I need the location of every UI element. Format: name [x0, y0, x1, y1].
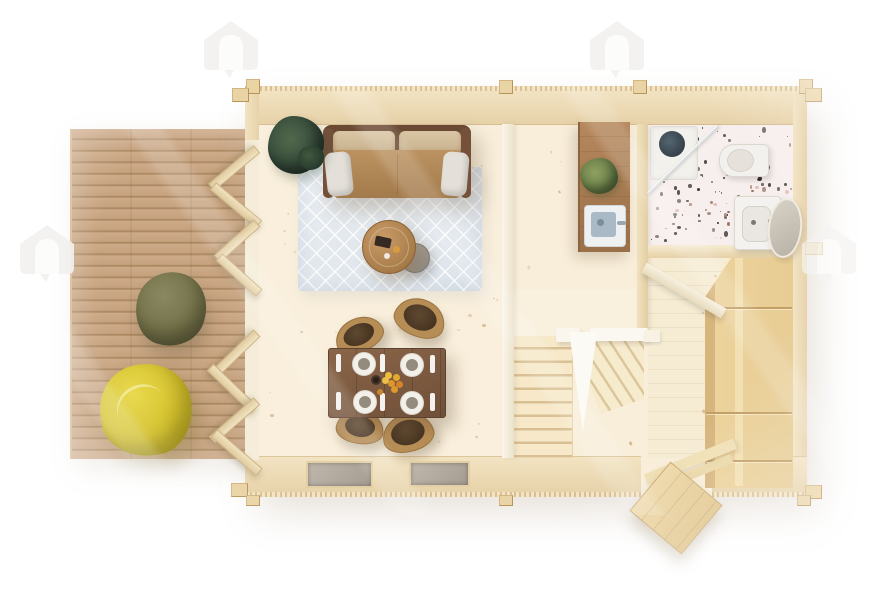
napkin: [430, 393, 435, 411]
log-end: [797, 495, 811, 506]
terrazzo-speckle: [724, 213, 727, 217]
terrazzo-speckle: [674, 232, 677, 235]
terrazzo-speckle: [719, 191, 721, 192]
terrazzo-speckle: [672, 223, 675, 225]
terrazzo-speckle: [721, 192, 723, 194]
wall-north: [245, 90, 807, 125]
terrazzo-speckle: [759, 136, 760, 137]
floor-knot: [287, 213, 288, 215]
kitchenette-sink: [584, 205, 626, 247]
log-end: [633, 80, 647, 94]
stair-flight-straight: [514, 336, 573, 458]
terrazzo-speckle: [704, 160, 707, 164]
terrazzo-speckle: [755, 186, 759, 189]
terrazzo-speckle: [651, 239, 652, 240]
floor-plan-canvas: [0, 0, 886, 590]
terrazzo-speckle: [698, 214, 700, 216]
floor-knot: [481, 165, 483, 168]
terrazzo-speckle: [726, 203, 727, 204]
log-edge-south: [245, 492, 514, 497]
plate: [400, 353, 424, 377]
terrazzo-speckle: [714, 203, 717, 206]
partition-living: [502, 124, 514, 458]
terrazzo-speckle: [660, 192, 664, 196]
log-edge-south: [514, 492, 641, 497]
cabinet-seam: [706, 412, 792, 414]
terrazzo-speckle: [685, 228, 687, 231]
terrazzo-speckle: [762, 127, 766, 132]
watermark-house-logo: [586, 18, 648, 78]
terrazzo-speckle: [723, 177, 725, 179]
sofa-pillow-right: [440, 151, 470, 197]
sink-faucet: [617, 221, 626, 225]
basin-drain: [751, 220, 756, 225]
log-end: [499, 80, 513, 94]
floor-knot: [482, 324, 486, 327]
terrazzo-speckle: [688, 184, 692, 188]
terrazzo-speckle: [717, 131, 718, 132]
terrazzo-speckle: [750, 185, 753, 188]
floor-knot: [468, 314, 472, 317]
floor-knot: [269, 392, 271, 394]
floor-knot: [438, 440, 440, 443]
plate: [400, 391, 424, 415]
wall-south-middle: [514, 456, 641, 493]
floor-knot: [283, 230, 286, 232]
terrazzo-speckle: [789, 143, 792, 146]
plate: [352, 352, 376, 376]
terrazzo-speckle: [686, 200, 688, 202]
plate: [353, 390, 377, 414]
terrazzo-speckle: [707, 212, 711, 215]
wall-south-left: [245, 456, 514, 493]
napkin: [380, 354, 385, 372]
log-end: [499, 495, 513, 506]
partition-bathroom-west: [637, 124, 648, 330]
terrazzo-speckle: [689, 203, 693, 206]
toilet: [719, 144, 769, 177]
napkin: [336, 392, 341, 410]
terrazzo-speckle: [674, 186, 677, 189]
floor-knot: [293, 250, 296, 254]
terrazzo-speckle: [784, 183, 787, 187]
floor-knot: [475, 436, 479, 440]
log-end: [805, 242, 823, 255]
watermark-house-logo: [16, 222, 78, 282]
napkin: [336, 354, 341, 372]
terrazzo-speckle: [727, 222, 730, 226]
log-edge-north: [245, 86, 807, 91]
coffee-table-candle: [393, 246, 400, 253]
terrazzo-speckle: [762, 187, 766, 191]
terrazzo-speckle: [727, 214, 729, 215]
floor-knot: [492, 298, 494, 300]
terrazzo-speckle: [724, 231, 728, 236]
log-end: [246, 495, 260, 506]
terrazzo-speckle: [723, 134, 726, 137]
terrazzo-speckle: [674, 216, 677, 219]
terrazzo-speckle: [677, 226, 681, 229]
terrazzo-speckle: [757, 178, 762, 181]
amber-cup: [377, 389, 383, 395]
terrazzo-speckle: [720, 237, 722, 239]
terrazzo-speckle: [705, 209, 707, 211]
napkin: [430, 355, 435, 373]
terrazzo-speckle: [677, 190, 681, 195]
floor-knot: [284, 243, 285, 245]
terrazzo-speckle: [711, 181, 713, 182]
terrazzo-speckle: [664, 239, 667, 242]
terrazzo-speckle: [682, 214, 683, 215]
floor-knot: [300, 331, 303, 333]
window-south-1: [306, 461, 373, 488]
napkin: [380, 393, 385, 411]
terrazzo-speckle: [702, 127, 704, 129]
cabinet-highlight: [735, 258, 743, 486]
floor-knot: [714, 274, 717, 277]
terrazzo-speckle: [665, 228, 667, 229]
floor-knot: [560, 161, 562, 163]
log-end: [805, 88, 822, 102]
floor-knot: [558, 190, 562, 194]
sofa-pillow-left: [324, 151, 354, 197]
terrazzo-speckle: [663, 181, 665, 183]
floor-knot: [550, 150, 553, 153]
terrazzo-speckle: [656, 207, 659, 209]
floor-knot: [527, 266, 530, 270]
counter-plant: [580, 158, 618, 194]
floor-knot: [496, 299, 499, 302]
terrazzo-speckle: [697, 188, 700, 191]
terrazzo-speckle: [717, 222, 719, 224]
terrazzo-speckle: [761, 183, 763, 186]
terrazzo-speckle: [675, 209, 679, 212]
watermark-house-logo: [200, 18, 262, 78]
terrazzo-speckle: [720, 211, 722, 213]
terrazzo-speckle: [777, 187, 780, 191]
terrazzo-speckle: [787, 136, 788, 137]
window-south-2: [409, 461, 470, 487]
terrazzo-speckle: [715, 237, 716, 238]
fruit-bowl: [385, 372, 392, 379]
floor-knot: [702, 312, 704, 315]
terrazzo-speckle: [677, 199, 681, 203]
under-stair-stub: [644, 330, 660, 342]
log-end: [232, 88, 249, 102]
log-edge-south: [712, 492, 807, 497]
terrazzo-speckle: [715, 191, 717, 193]
wall-east: [793, 90, 807, 497]
terrazzo-speckle: [655, 235, 659, 238]
stair-railing-top: [590, 328, 648, 341]
dark-cup: [371, 375, 381, 385]
terrazzo-speckle: [790, 188, 792, 190]
coffee-table-cup: [384, 253, 390, 259]
terrazzo-speckle: [698, 220, 700, 222]
floor-knot: [270, 414, 274, 417]
floor-knot: [478, 423, 481, 426]
shower-head: [659, 131, 685, 157]
sink-drain: [597, 219, 604, 226]
terrazzo-speckle: [728, 139, 731, 142]
dining-table: [328, 348, 446, 418]
terrazzo-speckle: [768, 183, 771, 187]
terrazzo-speckle: [751, 190, 754, 193]
potted-plant-living: [268, 116, 324, 174]
floor-knot: [457, 329, 461, 332]
terrazzo-speckle: [785, 190, 788, 194]
terrazzo-speckle: [727, 211, 730, 213]
terrazzo-speckle: [712, 228, 715, 232]
floor-knot: [629, 442, 632, 446]
sofa: [323, 125, 471, 201]
